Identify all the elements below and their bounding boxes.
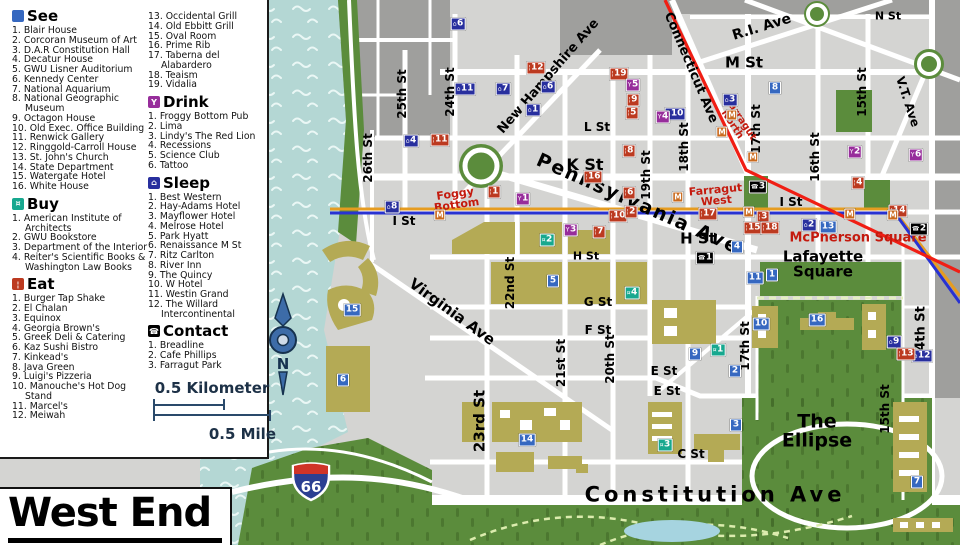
contact-glyph-icon: ☎ (912, 226, 919, 232)
legend-section-header-eat: ¦Eat (12, 275, 148, 293)
marker-eat-18[interactable]: ¦18 (760, 222, 779, 235)
sleep-glyph-icon: ⌂ (406, 138, 410, 144)
drink-glyph-icon: Y (628, 82, 632, 88)
marker-sleep-3[interactable]: ⌂3 (723, 94, 738, 107)
marker-see-13[interactable]: 13 (820, 221, 837, 234)
sleep-glyph-icon: ⌂ (889, 339, 893, 345)
legend-section-title: Eat (27, 275, 55, 293)
marker-eat-13[interactable]: ¦13 (896, 348, 915, 361)
buy-glyph-icon: ¤ (660, 442, 664, 448)
eat-glyph-icon: ¦ (490, 189, 492, 195)
eat-glyph-icon: ¦ (610, 213, 612, 219)
map-scale: 0.5 Kilometer0.5 Mile (148, 379, 276, 443)
marker-see-7[interactable]: 7 (911, 476, 923, 489)
sleep-glyph-icon: ⌂ (804, 222, 808, 228)
eat-glyph-icon: ¦ (628, 110, 630, 116)
marker-drink-6[interactable]: Y6 (909, 149, 923, 162)
marker-eat-4[interactable]: ¦4 (852, 177, 865, 190)
drink-glyph-icon: Y (566, 227, 570, 233)
legend-item-eat-12: 12. Meiwah (12, 411, 148, 421)
metro-station-icon: M (716, 127, 727, 138)
marker-see-3[interactable]: 3 (730, 419, 742, 432)
see-icon (12, 10, 24, 22)
marker-drink-5[interactable]: Y5 (626, 79, 640, 92)
eat-glyph-icon: ¦ (745, 225, 747, 231)
marker-sleep-6[interactable]: ⌂6 (541, 81, 556, 94)
metro-station-icon: M (726, 110, 737, 121)
drink-glyph-icon: Y (850, 149, 854, 155)
marker-buy-1[interactable]: ¤1 (711, 344, 726, 357)
metro-station-icon: M (844, 209, 855, 220)
drink-glyph-icon: Y (911, 152, 915, 158)
buy-glyph-icon: ¤ (542, 237, 546, 243)
legend-column-1: See1. Blair House2. Corcoran Museum of A… (12, 4, 148, 457)
sleep-glyph-icon: ⌂ (543, 84, 547, 90)
marker-see-1[interactable]: 1 (766, 269, 778, 282)
eat-glyph-icon: ¦ (898, 351, 900, 357)
marker-see-8[interactable]: 8 (769, 82, 781, 95)
marker-buy-2[interactable]: ¤2 (540, 234, 555, 247)
map-title-box: West End (0, 487, 232, 545)
legend-item-see-16: 16. White House (12, 182, 148, 192)
legend-section-header-contact: ☎Contact (148, 322, 266, 340)
legend-section-header-drink: YDrink (148, 93, 266, 111)
marker-buy-3[interactable]: ¤3 (658, 439, 673, 452)
metro-station-icon: M (434, 210, 445, 221)
scale-mile-label: 0.5 Mile (148, 425, 276, 443)
marker-see-15[interactable]: 15 (344, 304, 361, 317)
legend-section-title: Drink (163, 93, 209, 111)
legend-item-eat-19: 19. Vidalia (148, 80, 266, 90)
eat-glyph-icon: ¦ (854, 180, 856, 186)
eat-glyph-icon: ¦ (432, 137, 434, 143)
marker-see-9[interactable]: 9 (689, 348, 701, 361)
marker-drink-2[interactable]: Y2 (848, 146, 862, 159)
eat-glyph-icon: ¦ (762, 225, 764, 231)
marker-contact-1[interactable]: ☎1 (696, 252, 714, 265)
marker-buy-4[interactable]: ¤4 (625, 287, 640, 300)
marker-eat-6[interactable]: ¦6 (623, 187, 636, 200)
legend-section-header-buy: ¤Buy (12, 195, 148, 213)
sleep-glyph-icon: ⌂ (387, 204, 391, 210)
marker-sleep-8[interactable]: ⌂8 (385, 201, 400, 214)
metro-station-icon: M (887, 210, 898, 221)
legend-item-see-8: 8. National Geographic Museum (12, 94, 148, 114)
metro-station-icon: M (747, 152, 758, 163)
drink-icon: Y (148, 96, 160, 108)
sleep-icon: ⌂ (148, 177, 160, 189)
legend-item-contact-3: 3. Farragut Park (148, 361, 266, 371)
marker-drink-1[interactable]: Y1 (516, 193, 530, 206)
marker-sleep-6[interactable]: ⌂6 (451, 18, 466, 31)
marker-eat-8[interactable]: ¦8 (623, 145, 636, 158)
marker-see-14[interactable]: 14 (519, 434, 536, 447)
buy-glyph-icon: ¤ (713, 347, 717, 353)
metro-station-icon: M (672, 192, 683, 203)
legend-section-title: Buy (27, 195, 59, 213)
marker-eat-7[interactable]: ¦7 (593, 226, 606, 239)
legend-section-header-sleep: ⌂Sleep (148, 174, 266, 192)
marker-see-6[interactable]: 6 (337, 374, 349, 387)
legend-section-title: See (27, 7, 58, 25)
eat-icon: ¦ (12, 278, 24, 290)
marker-eat-12[interactable]: ¦12 (526, 62, 545, 75)
marker-sleep-7[interactable]: ⌂7 (496, 83, 511, 96)
sleep-glyph-icon: ⌂ (498, 86, 502, 92)
marker-contact-2[interactable]: ☎2 (910, 223, 928, 236)
marker-contact-3[interactable]: ☎3 (749, 181, 767, 194)
marker-sleep-2[interactable]: ⌂2 (802, 219, 817, 232)
scale-km-label: 0.5 Kilometer (148, 379, 276, 397)
legend-section-title: Contact (163, 322, 228, 340)
sleep-glyph-icon: ⌂ (725, 97, 729, 103)
eat-glyph-icon: ¦ (611, 71, 613, 77)
marker-see-5[interactable]: 5 (547, 275, 559, 288)
marker-see-10[interactable]: 10 (753, 318, 770, 331)
map-title: West End (8, 490, 222, 543)
legend-item-eat-10: 10. Manouche's Hot Dog Stand (12, 382, 148, 402)
contact-icon: ☎ (148, 325, 160, 337)
sleep-glyph-icon: ⌂ (453, 21, 457, 27)
marker-sleep-11[interactable]: ⌂11 (455, 83, 476, 96)
drink-glyph-icon: Y (658, 114, 662, 120)
eat-glyph-icon: ¦ (595, 229, 597, 235)
legend-column-2: 13. Occidental Grill14. Old Ebbitt Grill… (148, 4, 266, 457)
eat-glyph-icon: ¦ (625, 190, 627, 196)
marker-see-2[interactable]: 2 (729, 365, 741, 378)
eat-glyph-icon: ¦ (528, 65, 530, 71)
legend-item-eat-17: 17. Taberna del Alabardero (148, 51, 266, 71)
metro-station-icon: M (743, 207, 754, 218)
compass-north-label: N (277, 355, 290, 373)
shield-route-number: 66 (301, 478, 322, 496)
legend-panel: See1. Blair House2. Corcoran Museum of A… (0, 0, 269, 459)
marker-sleep-1[interactable]: ⌂1 (526, 104, 541, 117)
constitution-gardens-pond (624, 520, 720, 542)
legend-item-buy-1: 1. American Institute of Architects (12, 214, 148, 234)
eat-glyph-icon: ¦ (759, 214, 761, 220)
eat-glyph-icon: ¦ (625, 148, 627, 154)
legend-section-title: Sleep (163, 174, 210, 192)
legend-item-drink-6: 6. Tattoo (148, 161, 266, 171)
legend-item-buy-4: 4. Reiter's Scientific Books & Washingto… (12, 253, 148, 273)
marker-eat-17[interactable]: ¦17 (698, 208, 717, 221)
marker-see-4[interactable]: 4 (731, 241, 743, 254)
eat-glyph-icon: ¦ (627, 209, 629, 215)
marker-eat-11[interactable]: ¦11 (430, 134, 449, 147)
marker-eat-16[interactable]: ¦16 (583, 171, 602, 184)
eat-glyph-icon: ¦ (585, 174, 587, 180)
marker-drink-4[interactable]: Y4 (656, 111, 670, 124)
scale-bar-graphic (148, 397, 276, 423)
legend-section-header-see: See (12, 7, 148, 25)
sleep-glyph-icon: ⌂ (457, 86, 461, 92)
contact-glyph-icon: ☎ (751, 184, 758, 190)
marker-eat-1[interactable]: ¦1 (488, 186, 501, 199)
eat-glyph-icon: ¦ (700, 211, 702, 217)
buy-glyph-icon: ¤ (627, 290, 631, 296)
marker-see-16[interactable]: 16 (809, 314, 826, 327)
marker-sleep-4[interactable]: ⌂4 (404, 135, 419, 148)
legend-item-sleep-12: 12. The Willard Intercontinental (148, 300, 266, 320)
marker-drink-3[interactable]: Y3 (564, 224, 578, 237)
marker-eat-5[interactable]: ¦5 (626, 107, 639, 120)
marker-see-11[interactable]: 11 (747, 272, 764, 285)
marker-eat-2[interactable]: ¦2 (625, 206, 638, 219)
contact-glyph-icon: ☎ (698, 255, 705, 261)
west-end-map: N 66 N StM StR.I. AveL StK StI StI StH S… (0, 0, 960, 545)
buy-icon: ¤ (12, 198, 24, 210)
eat-glyph-icon: ¦ (629, 97, 631, 103)
sleep-glyph-icon: ⌂ (528, 107, 532, 113)
marker-eat-9[interactable]: ¦9 (627, 94, 640, 107)
drink-glyph-icon: Y (518, 196, 522, 202)
